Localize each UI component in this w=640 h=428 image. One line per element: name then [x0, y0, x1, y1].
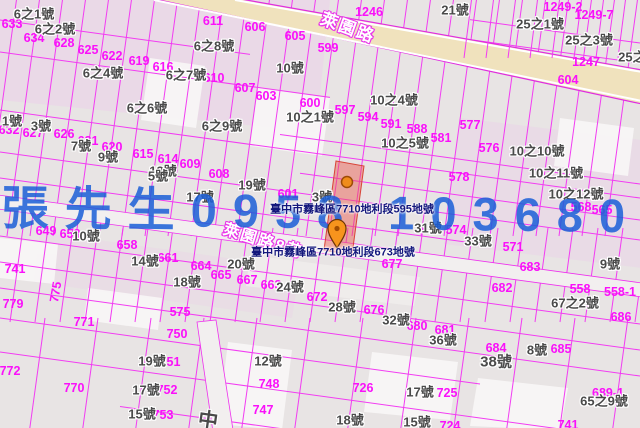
parcel-address-label-673: 臺中市霧峰區7710地利段673地號: [251, 248, 415, 259]
map-viewport[interactable]: 6336346286256226196166106076036005975945…: [0, 0, 640, 428]
parcel-address-label-595: 臺中市霧峰區7710地利段595地號: [270, 205, 434, 216]
parcel-marker-pin[interactable]: [328, 220, 346, 249]
parcel-marker-dot[interactable]: [342, 177, 353, 188]
